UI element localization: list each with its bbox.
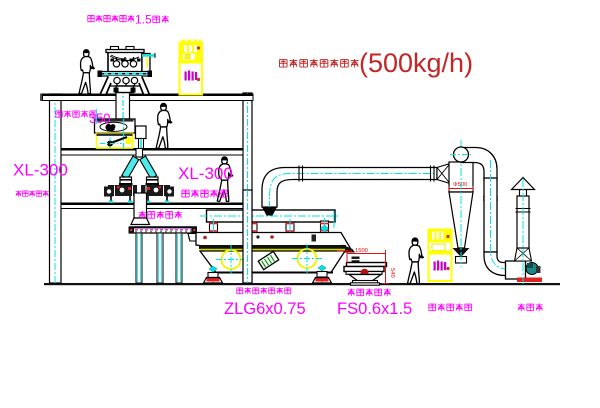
svg-text:FS0.6x1.5: FS0.6x1.5 <box>337 300 412 318</box>
svg-text:ZLG6x0.75: ZLG6x0.75 <box>224 300 306 318</box>
svg-text:1.5: 1.5 <box>135 13 152 27</box>
svg-text:(500kg/h): (500kg/h) <box>359 48 473 78</box>
svg-text:XL-300: XL-300 <box>13 161 68 180</box>
svg-text:350: 350 <box>89 111 110 126</box>
svg-text:1500: 1500 <box>355 248 368 254</box>
svg-text:540: 540 <box>389 268 395 278</box>
svg-text:Φ500: Φ500 <box>453 182 467 188</box>
svg-text:XL-300: XL-300 <box>178 164 233 183</box>
